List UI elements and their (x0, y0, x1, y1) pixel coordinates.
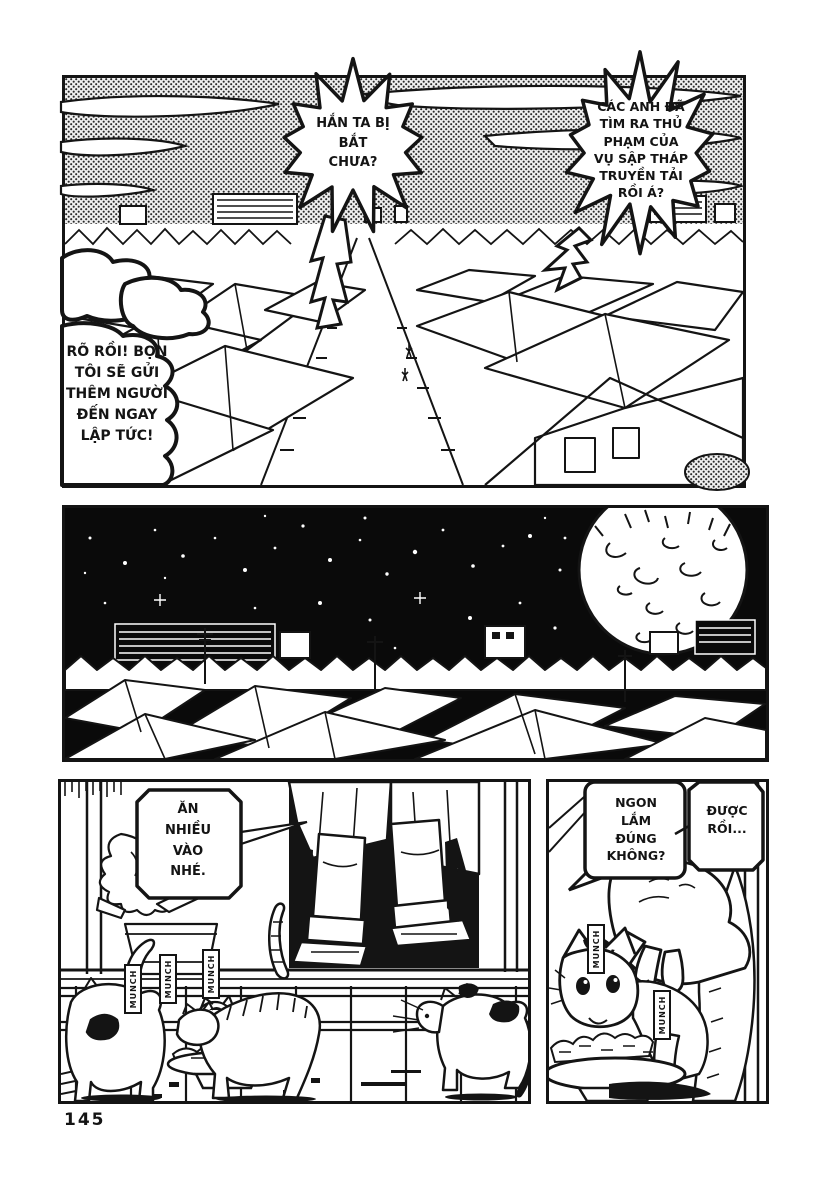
panel-hand-cat: NGON LẮM ĐÚNG KHÔNG? ĐƯỢC RỒI... MUNCH M… (546, 779, 769, 1104)
sfx-munch: MUNCH (587, 924, 605, 974)
porch-cats-artwork (61, 782, 528, 1101)
panel-city-night (62, 505, 769, 762)
panel-porch-cats: ĂN NHIỀU VÀO NHÉ. MUNCH MUNCH MUNCH (58, 779, 531, 1104)
speech-text-right: CÁC ANH ĐÃ TÌM RA THỦ PHẠM CỦA VỤ SẬP TH… (571, 98, 711, 202)
speech-text-left: HẮN TA BỊ BẮT CHƯA? (293, 114, 413, 173)
city-night-artwork (65, 508, 766, 759)
reply-caption-text: RÕ RỒI! BỌN TÔI SẼ GỬI THÊM NGƯỜI ĐẾN NG… (64, 342, 170, 447)
sfx-munch: MUNCH (124, 964, 142, 1014)
tasty-bubble-text: NGON LẮM ĐÚNG KHÔNG? (589, 794, 683, 865)
bush (685, 454, 749, 490)
ok-bubble-text: ĐƯỢC RỒI... (689, 802, 765, 838)
panel-city-day: HẮN TA BỊ BẮT CHƯA? CÁC ANH ĐÃ TÌM RA TH… (62, 75, 746, 488)
sfx-munch: MUNCH (202, 949, 220, 999)
page-number: 145 (64, 1110, 106, 1130)
sfx-munch: MUNCH (653, 990, 671, 1040)
manga-page: HẮN TA BỊ BẮT CHƯA? CÁC ANH ĐÃ TÌM RA TH… (0, 0, 823, 1200)
feed-bubble-text: ĂN NHIỀU VÀO NHÉ. (137, 800, 239, 883)
sfx-munch: MUNCH (159, 954, 177, 1004)
